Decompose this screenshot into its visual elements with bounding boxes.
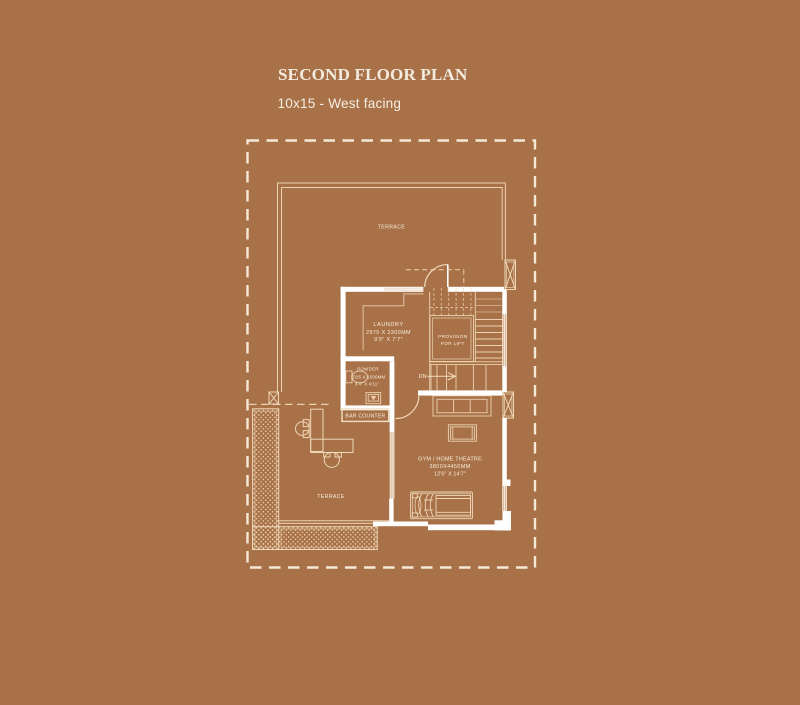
svg-text:1025 X 1500MM: 1025 X 1500MM bbox=[351, 374, 386, 379]
svg-text:LAUNDRY: LAUNDRY bbox=[373, 322, 403, 328]
svg-text:3800X4450MM: 3800X4450MM bbox=[430, 464, 471, 470]
svg-text:GYM / HOME THEATRE: GYM / HOME THEATRE bbox=[418, 456, 482, 462]
svg-text:PROVISION: PROVISION bbox=[438, 334, 468, 340]
svg-text:3'4" X 4'11": 3'4" X 4'11" bbox=[355, 382, 380, 387]
svg-text:12'6" X 14'7": 12'6" X 14'7" bbox=[434, 471, 466, 477]
svg-text:POWDER: POWDER bbox=[357, 367, 379, 372]
svg-text:DN: DN bbox=[419, 374, 427, 380]
svg-text:TERRACE: TERRACE bbox=[378, 225, 406, 231]
svg-text:SECOND FLOOR PLAN: SECOND FLOOR PLAN bbox=[278, 65, 468, 84]
svg-text:BAR COUNTER: BAR COUNTER bbox=[345, 414, 385, 420]
svg-text:10x15 - West facing: 10x15 - West facing bbox=[278, 96, 402, 111]
svg-text:9'9" X 7'7": 9'9" X 7'7" bbox=[374, 337, 403, 343]
svg-text:2975 X 2300MM: 2975 X 2300MM bbox=[366, 330, 411, 336]
svg-text:TERRACE: TERRACE bbox=[317, 494, 345, 500]
svg-text:FOR LIFT: FOR LIFT bbox=[441, 341, 465, 347]
